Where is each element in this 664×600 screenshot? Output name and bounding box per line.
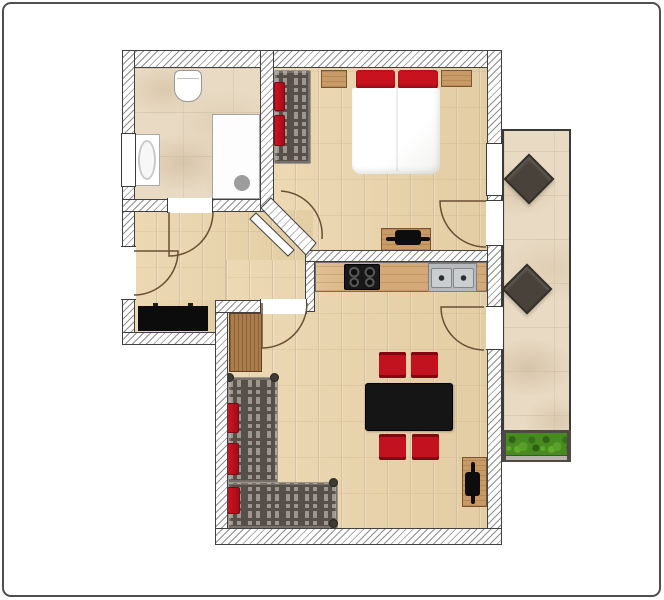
wall-right xyxy=(487,50,502,545)
wall-bathroom-bedroom xyxy=(260,50,274,212)
toilet xyxy=(174,70,202,102)
dresser-soundbar xyxy=(395,230,421,245)
bedroom-bench-cushion xyxy=(274,82,285,111)
bed-duvet xyxy=(352,88,440,174)
dining-table xyxy=(365,383,453,431)
wall-left xyxy=(122,50,135,345)
wall-bottom xyxy=(215,528,502,545)
sofa-corner-post xyxy=(329,478,338,487)
bedroom-window-opening xyxy=(486,143,503,196)
dining-chair xyxy=(379,434,406,460)
sofa-cushion xyxy=(227,403,239,433)
kitchen-sink xyxy=(428,263,477,292)
entrance-door-opening xyxy=(121,246,136,300)
bathroom-sink xyxy=(134,134,160,186)
wall-top xyxy=(122,50,502,68)
sofa-corner-post xyxy=(329,519,338,528)
hall-living-door-opening xyxy=(260,299,307,314)
tv xyxy=(465,472,480,496)
sofa-arm-horizontal xyxy=(228,482,338,529)
bathroom-door-opening xyxy=(167,198,213,213)
sofa-cushion xyxy=(227,443,239,475)
dining-chair xyxy=(379,352,406,378)
dining-chair xyxy=(411,352,438,378)
bathroom-window-opening xyxy=(121,133,136,187)
living-balcony-door-opening xyxy=(486,306,503,350)
bedroom-bench-cushion xyxy=(274,115,285,146)
nightstand-left xyxy=(321,70,347,88)
dining-chair xyxy=(412,434,439,460)
bed-pillow-right xyxy=(398,70,438,89)
hallway-sideboard xyxy=(138,306,208,331)
hallway-cabinet xyxy=(229,313,262,372)
bed-pillow-left xyxy=(356,70,395,89)
wall-living-left xyxy=(215,300,228,545)
nightstand-right xyxy=(441,70,472,87)
floor-plan xyxy=(0,0,664,600)
balcony-planter xyxy=(502,430,571,462)
wall-hall-bottom-left xyxy=(122,332,217,345)
bedroom-balcony-door-opening xyxy=(486,200,503,246)
sofa-corner-post xyxy=(270,373,279,382)
shower xyxy=(212,114,260,199)
wall-kitchen xyxy=(305,250,502,262)
cooktop xyxy=(344,264,380,290)
sofa-cushion xyxy=(227,487,240,514)
